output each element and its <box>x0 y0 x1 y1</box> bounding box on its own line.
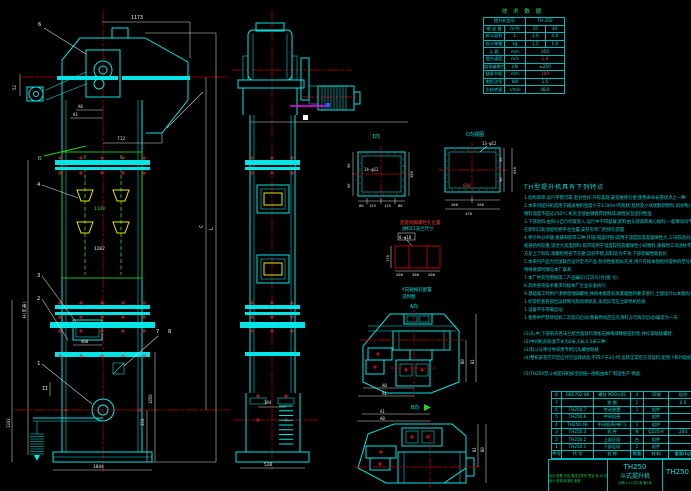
tech-row-unit: m/s <box>505 55 526 63</box>
tech-row-label: 电机功率 <box>484 78 505 86</box>
front-elevation-view: 1173 712 A0 A1 52 H(见表) 1332 C L 1850 35… <box>6 10 230 472</box>
tech-row-value: TH 250 <box>526 18 565 26</box>
tech-row-value: 1.4 <box>526 55 565 63</box>
top2-dim-A0: A0 <box>380 416 385 421</box>
balloon-6: 6 <box>38 22 41 28</box>
head-top-view-left-drive: B0 B1 A0 A1 <box>358 310 476 398</box>
top2-dim-B1: B1 <box>472 447 477 452</box>
dim-L: L <box>209 227 215 230</box>
title-block-revision-area: 标记 处数 分区 更改文件号 签名 年.月.日 设计 校核 标准化 批准 <box>549 460 608 491</box>
note-line: 1.设备不许带载启动. <box>524 307 691 315</box>
base-bolt-caption: 底座地脚螺栓孔位置 <box>400 219 441 226</box>
top1-dim-B1: B1 <box>470 359 475 364</box>
top1-dim-B0: B0 <box>460 359 465 364</box>
note-line: (1)头,中,下部机壳各法兰结合面处均须加石棉绳或橡胶密封垫,并拧紧联接螺栓. <box>524 331 691 339</box>
top2-dim-A1: A1 <box>380 409 385 414</box>
dim-52: 52 <box>12 85 17 90</box>
flange-title: 进料口法兰尺寸 <box>402 225 434 232</box>
b-view-mark: B向 <box>411 404 419 411</box>
note-line: 9.基础施工时用户须预埋地脚螺栓,并按本图及有关基础图的要求进行,土建设计以本图… <box>524 291 691 299</box>
tech-row-value: 100 <box>526 71 565 79</box>
detail-C-dim-50a: 50 <box>498 157 503 162</box>
tech-row-unit: m³/h <box>505 25 526 33</box>
balloon-1: 1 <box>37 361 40 367</box>
detail-view-I: I向 14-φ12 80 125 125 80 300 50 50 <box>346 133 414 208</box>
cad-sheet: 1173 712 A0 A1 52 H(见表) 1332 C L 1850 35… <box>0 0 691 491</box>
top1-dim-A1: A1 <box>382 391 387 396</box>
tech-row-unit: mm <box>505 48 526 56</box>
note-line: 物料温度不超过250℃,机壳全部由钢板焊接制成,刚性好且密封性强. <box>524 211 691 219</box>
detail-C-dim-430: 430 <box>512 166 517 174</box>
head-top-view-right-drive: A1 A0 B1 B0 <box>354 409 486 488</box>
bom-row: 4TH250.4B中间机壳(带门)1组件 <box>552 421 691 428</box>
tech-row-label: 提升速度 <box>484 55 505 63</box>
dim-C: C <box>199 225 205 228</box>
detail-C-dim-200b: 200 <box>477 202 485 207</box>
balloon-3: 3 <box>37 273 40 279</box>
tech-row-value: 25 <box>526 25 546 33</box>
tech-row-value: 3.0 <box>526 33 546 41</box>
drawing-number: TH250 <box>663 460 691 491</box>
feature-notes: TH型提升机具有下列特点 1.结构简单,运行平稳可靠,密封性好,外形美观,安装维… <box>524 182 691 379</box>
tech-row-label: 料斗容积 <box>484 33 505 41</box>
tech-row-value: 1.8 <box>545 40 565 48</box>
tech-row-label: 斗 距 <box>484 48 505 56</box>
note-line <box>524 323 691 331</box>
b-view-arrow <box>424 404 431 411</box>
bom-row: 8GB5782-86螺栓 M20×65435钢组合 <box>552 392 691 399</box>
dim-144: 144 <box>264 400 272 405</box>
tech-row-value: 48.8 <box>526 86 565 94</box>
tech-row-label: 输 送 量 <box>484 25 505 33</box>
note-line: 1.经常检查各部位运转情况及润滑状态,发现异常应立即停机检查. <box>524 299 691 307</box>
dim-400: 400 <box>81 339 89 344</box>
tech-row-value: 1.5 <box>526 78 565 86</box>
detail-I-dim-50b: 50 <box>346 183 351 188</box>
tech-row-unit: kg <box>505 40 526 48</box>
notes-heading: TH型提升机具有下列特点 <box>524 182 691 191</box>
flange-holes: 8-φ18 <box>399 235 412 240</box>
note-line: 2.本系列提升机适用于输送堆积密度小于1.5t/m³的粉状,粒状及小块状散装物料… <box>524 203 691 211</box>
detail-C-title: C向视图 <box>466 131 484 138</box>
title-block-center: TH250 斗式提升机 比例 1:10 共1张 第1张 <box>608 460 663 491</box>
dim-1202: 1202 <box>94 246 105 252</box>
dim-520: 520 <box>264 462 272 468</box>
bom-row: 1TH250.1下部区段1组件 <box>552 443 691 450</box>
dim-1173: 1173 <box>131 15 143 21</box>
detail-C-dim-200a: 200 <box>451 202 459 207</box>
blue-marker <box>326 103 330 107</box>
note-line: 1.结构简单,运行平稳可靠,密封性好,外形美观,安装维修方便,使用寿命长等优点之… <box>524 195 691 203</box>
note-line: (5)TH250型斗式提升机按全国统一图纸由本厂制造生产 特此. <box>524 371 691 379</box>
detail-I-title: I向 <box>372 133 380 140</box>
note-line: 方足上下料有,观察检修各节方便,运转平稳,卸料较为干净,下部装载性能良好. <box>524 251 691 259</box>
note-line: 4.牵引件分环链,板链和胶带三种,环链(锻造环链)适用于温度较高及磨琢性大,工况… <box>524 235 691 243</box>
bom-header-row: 件号代 号名 称数量材 料重量(kg) <box>552 451 691 458</box>
detail-C-holes: 13-φ12 <box>482 141 497 146</box>
note-line: 8.其余各项技术要求均按本厂企业标准执行. <box>524 283 691 291</box>
note-line: 板链结构较重,适合大高度卸料,胶带适用于温度较低及磨琢性小的物料,重载时工况须经… <box>524 243 691 251</box>
tech-row-value: 40 <box>545 25 565 33</box>
dim-a0: A0 <box>78 104 83 109</box>
tech-row-label: 链条节距 <box>484 71 505 79</box>
tech-row-unit: kN <box>505 63 526 71</box>
tech-row-unit: kW <box>505 78 526 86</box>
tech-row-label: 提升机型号 <box>484 18 526 26</box>
detail-I-dim-80a: 80 <box>359 203 364 208</box>
white-marker <box>303 115 308 120</box>
drawing-model: TH250 <box>608 463 662 471</box>
top2-dim-B0: B0 <box>480 447 485 452</box>
front-flange-bolt-ticks <box>58 156 146 412</box>
tech-data-table: 技 术 数 据 提升机型号TH 250 输 送 量m³/h2540 料斗容积L3… <box>483 8 562 94</box>
flange-dim-170: 170 <box>385 254 390 262</box>
bom-row: 2TH250.2上部区段台组件 <box>552 436 691 443</box>
detail-I-dim-300: 300 <box>409 170 414 178</box>
dim-1850: 1850 <box>148 394 153 404</box>
note-line: 1.使用中严禁将电机二次反向启动(重载停机后应先清料方可再次启动)偏差为一天. <box>524 315 691 323</box>
detail-C-dim-50b: 50 <box>498 177 503 182</box>
bom-row: 5TH250.6中间机壳组件 <box>552 414 691 421</box>
note-line: 在卸料口处须留检修平台位置,安装有专门检修孔装置. <box>524 227 691 235</box>
dim-1044: 1044 <box>93 464 104 470</box>
note-line: (2)中间机壳标准节长为2米,1米,0.5米三种. <box>524 339 691 347</box>
tech-row-value: 350 <box>526 48 565 56</box>
detail-I-dim-125a: 125 <box>369 203 376 208</box>
tech-row-unit: r/min <box>505 86 526 94</box>
dim-1332: 1332 <box>6 418 11 428</box>
note-line <box>524 363 691 371</box>
tech-row-value: 1.5 <box>526 40 546 48</box>
view-mark-B: B <box>38 156 42 162</box>
tech-row-label: 链条破断力 <box>484 63 505 71</box>
section-mark-II: II <box>42 386 48 392</box>
balloon-8: 8 <box>168 329 171 335</box>
detail-view-C: C向视图 13-φ12 600 200 200 470 50 50 430 <box>438 131 517 216</box>
y-view-note-1: Y向窥视孔配置 <box>402 286 432 293</box>
top1-dim-A0: A0 <box>382 383 387 388</box>
note-line: 5.本系列产品为全国联合设计定点产品,各项性能指标先进,用户可按本图纸所提供的型… <box>524 259 691 267</box>
tech-table-title: 技 术 数 据 <box>483 8 562 17</box>
bom-row: 3TH250.3机 壳NQ235-A204 <box>552 428 691 435</box>
inlet-flange-detail: 进料口法兰尺寸 8-φ18 170 200 300 200 <box>385 225 440 277</box>
dim-a1: A1 <box>73 112 78 117</box>
tech-row-value: 4.8 <box>545 33 565 41</box>
tech-row-label: 头轮转速 <box>484 86 505 94</box>
detail-I-dim-50a: 50 <box>346 163 351 168</box>
detail-I-dim-80b: 80 <box>398 203 403 208</box>
detail-I-holes: 14-φ12 <box>364 167 379 172</box>
parts-list: 8GB5782-86螺栓 M20×65435钢组合 7垫 圈10.0 6TH25… <box>551 391 691 459</box>
side-elevation-view: 144 520 <box>232 10 516 491</box>
balloon-2: 2 <box>37 296 40 302</box>
detail-C-dim-470: 470 <box>465 211 473 216</box>
detail-I-dim-125b: 125 <box>384 203 391 208</box>
bom-row: 6TH250.7传动装置1组件 <box>552 406 691 413</box>
y-view-note-2: 见附图 <box>402 293 416 300</box>
note-line: (4)整机安装完毕后应作空运转试验,不得少于2小时,运转正常后方可投料,配用 Y… <box>524 355 691 363</box>
flange-dim-300: 300 <box>412 272 420 277</box>
tech-row-label: 料斗单重 <box>484 40 505 48</box>
title-block: 标记 处数 分区 更改文件号 签名 年.月.日 设计 校核 标准化 批准 TH2… <box>548 459 691 491</box>
balloon-7: 7 <box>156 329 159 335</box>
note-line: (3)料斗与牵引件采用专用沉头螺栓联接. <box>524 347 691 355</box>
note-line: 7.本厂供货范围按第二产品编号(订货号)付(图 号). <box>524 275 691 283</box>
tech-row-value: ≥250 <box>526 63 565 71</box>
tech-row-unit: mm <box>505 71 526 79</box>
flange-dim-200a: 200 <box>396 272 404 277</box>
signature-row: 设计 校核 标准化 批准 <box>549 479 607 484</box>
bom-row: 7垫 圈10.0 <box>552 399 691 406</box>
dim-H: H(见表) <box>21 301 28 318</box>
drawing-scale: 比例 1:10 共1张 第1张 <box>608 480 662 485</box>
note-line: 特殊要求时请与本厂联系. <box>524 267 691 275</box>
tech-row-unit: L <box>505 33 526 41</box>
drawing-product-name: 斗式提升机 <box>608 471 662 480</box>
note-line: 3.下部进料,由料斗自行挖取装入,运行中不得超载,卸料由头部滚筒离心抛料,一般情… <box>524 219 691 227</box>
dim-1139: 1139 <box>94 206 105 212</box>
balloon-4: 4 <box>37 182 41 188</box>
detail-C-dim-600: 600 <box>463 183 471 188</box>
dim-712: 712 <box>117 136 125 142</box>
a-view-mark: A向 <box>410 303 418 310</box>
dim-350: 350 <box>140 418 145 426</box>
flange-dim-200b: 200 <box>428 272 436 277</box>
